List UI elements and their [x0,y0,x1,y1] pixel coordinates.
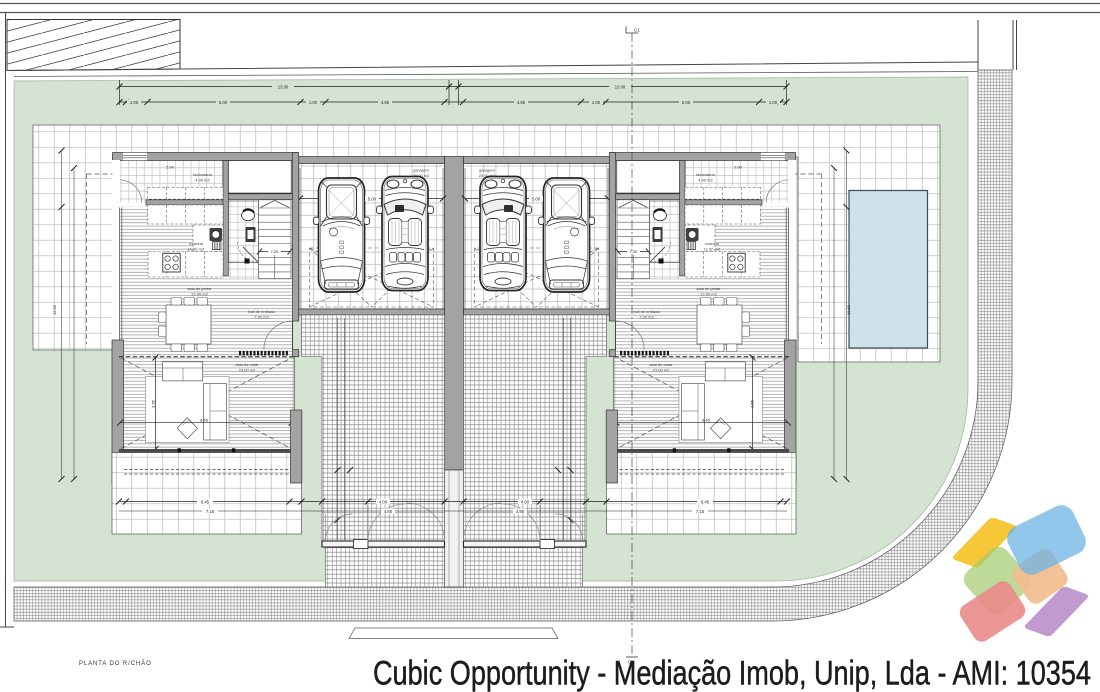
svg-text:6.45: 6.45 [200,418,209,423]
svg-text:hall de entrada: hall de entrada [248,309,275,314]
svg-text:20.00 m2: 20.00 m2 [479,173,496,178]
svg-text:sala de jantar: sala de jantar [187,286,212,291]
svg-text:garagem: garagem [479,168,495,173]
svg-text:5.00: 5.00 [368,196,377,201]
svg-text:13.00: 13.00 [615,84,626,89]
svg-text:20.00 m2: 20.00 m2 [413,173,430,178]
svg-text:sala de jantar: sala de jantar [696,286,721,291]
svg-text:lavandaria: lavandaria [193,172,212,177]
svg-text:7.00 m2: 7.00 m2 [254,315,269,320]
svg-text:6.45: 6.45 [702,418,711,423]
svg-text:7.20: 7.20 [630,249,639,254]
svg-text:7.15: 7.15 [696,509,705,514]
svg-text:3.55: 3.55 [750,399,755,408]
svg-text:6.45: 6.45 [701,499,710,504]
svg-text:4.85: 4.85 [384,509,393,514]
svg-text:1.00: 1.00 [130,100,139,105]
svg-text:sala de estar: sala de estar [650,362,674,367]
svg-text:5.00: 5.00 [219,100,228,105]
svg-text:23.00 m2: 23.00 m2 [653,368,670,373]
svg-text:1.00: 1.00 [309,100,318,105]
svg-text:7.15: 7.15 [206,509,215,514]
svg-text:2.90: 2.90 [734,165,743,170]
svg-text:4.85: 4.85 [516,509,525,514]
svg-text:cozinha: cozinha [705,241,720,246]
svg-text:23.00 m2: 23.00 m2 [239,368,256,373]
svg-text:7.20: 7.20 [271,249,280,254]
svg-text:1.00: 1.00 [592,100,601,105]
svg-text:4.85: 4.85 [517,100,526,105]
svg-text:lavandaria: lavandaria [696,172,715,177]
svg-text:C1: C1 [634,28,640,33]
svg-text:garagem: garagem [413,168,429,173]
svg-text:4.00 m2: 4.00 m2 [195,178,210,183]
svg-text:5.00: 5.00 [682,100,691,105]
svg-text:4.00 m2: 4.00 m2 [698,178,713,183]
svg-text:PLANTA DO R/CHÃO: PLANTA DO R/CHÃO [79,660,152,667]
svg-text:4.00: 4.00 [379,499,388,504]
svg-text:12.00 m2: 12.00 m2 [700,292,717,297]
svg-text:12.00 m2: 12.00 m2 [191,292,208,297]
svg-text:4.00: 4.00 [521,499,530,504]
svg-text:5.00: 5.00 [532,196,541,201]
svg-text:12.50: 12.50 [846,304,851,315]
svg-text:11.00 m2: 11.00 m2 [188,247,205,252]
svg-text:12.65: 12.65 [52,304,57,315]
svg-text:4.85: 4.85 [381,100,390,105]
svg-text:13.00: 13.00 [278,84,289,89]
svg-text:Cubic Opportunity - Mediação I: Cubic Opportunity - Mediação Imob, Unip,… [373,655,1091,692]
svg-text:11.00 m2: 11.00 m2 [704,247,721,252]
svg-text:hall de entrada: hall de entrada [633,309,660,314]
svg-text:3.55: 3.55 [151,399,156,408]
svg-text:6.45: 6.45 [201,499,210,504]
svg-text:7.00 m2: 7.00 m2 [639,315,654,320]
svg-text:2.90: 2.90 [166,165,175,170]
svg-text:1.00: 1.00 [769,100,778,105]
svg-text:sala de estar: sala de estar [236,362,260,367]
svg-text:cozinha: cozinha [189,241,204,246]
